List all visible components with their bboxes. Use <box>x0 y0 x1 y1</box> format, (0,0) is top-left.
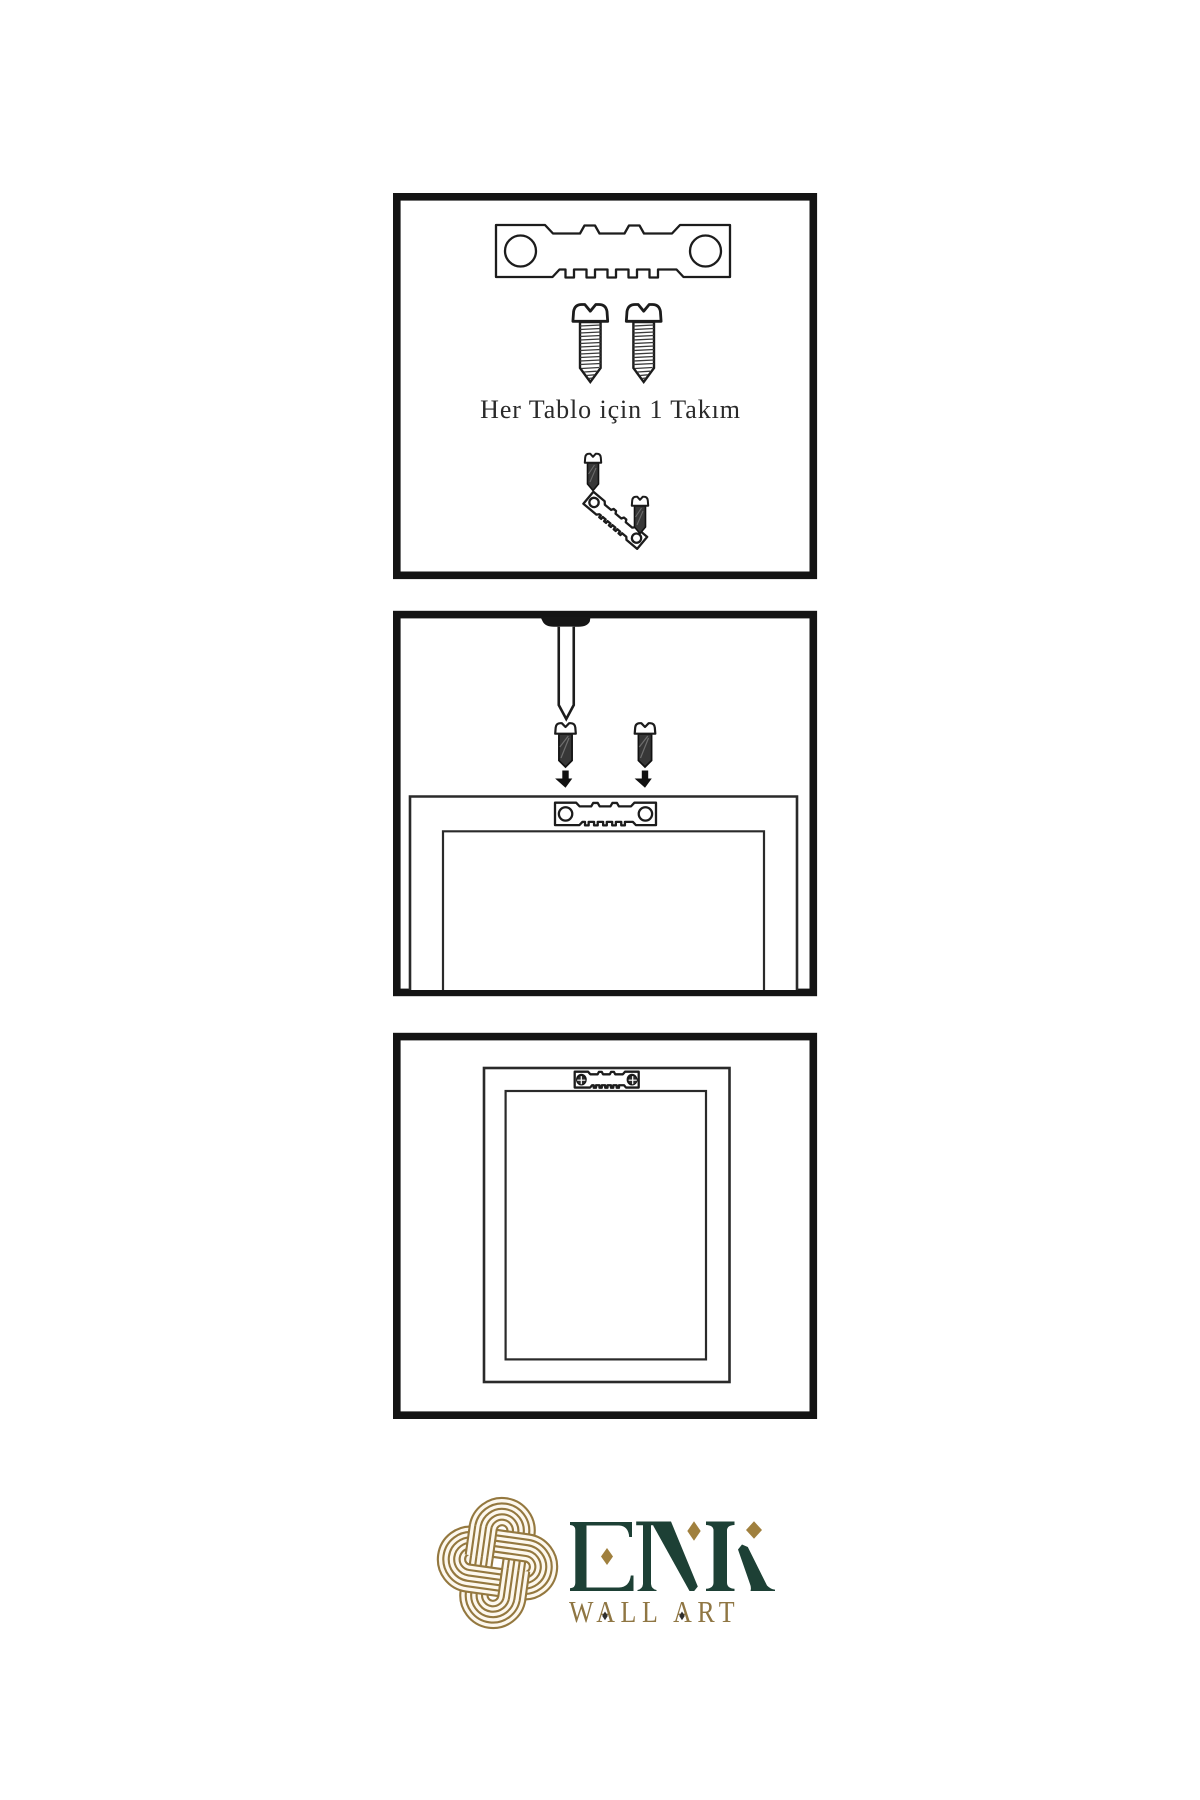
svg-text:WALL ART: WALL ART <box>569 1596 740 1629</box>
svg-text:Her Tablo için 1 Takım: Her Tablo için 1 Takım <box>480 395 741 424</box>
